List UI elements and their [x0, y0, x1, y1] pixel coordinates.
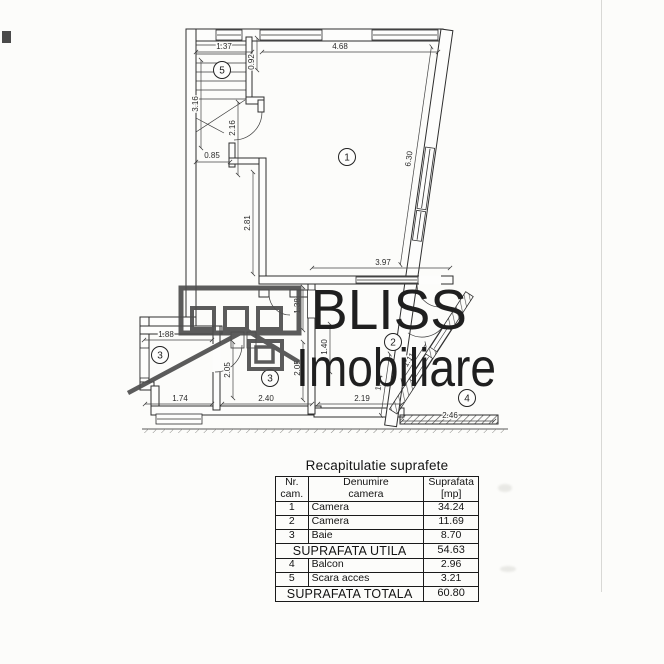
- svg-text:3: 3: [157, 351, 163, 362]
- subtotal-row: SUPRAFATA UTILA 54.63: [276, 543, 479, 558]
- dimension-label: 2.05: [223, 362, 232, 378]
- table-row: 3 Baie 8.70: [276, 529, 479, 543]
- header-area: Suprafata[mp]: [424, 477, 479, 502]
- dimension-label: 0.92: [247, 54, 256, 70]
- room-label-3b: 3: [262, 370, 279, 387]
- ground-hatch: [142, 429, 508, 433]
- logo-text-bliss: BLISS: [311, 278, 467, 342]
- room-label-5: 5: [214, 62, 231, 79]
- svg-text:1: 1: [344, 153, 350, 164]
- window: [412, 147, 434, 241]
- dimension-label: 1.74: [172, 394, 188, 403]
- svg-text:5: 5: [219, 66, 225, 77]
- table-row: 2 Camera 11.69: [276, 515, 479, 529]
- total-row: SUPRAFATA TOTALA 60.80: [276, 586, 479, 601]
- window: [140, 348, 149, 378]
- dimension-label: 1.88: [158, 330, 174, 339]
- staircase: [196, 45, 246, 133]
- table-header-row: Nr.cam. Denumirecamera Suprafata[mp]: [276, 477, 479, 502]
- room-label-3a: 3: [152, 347, 169, 364]
- dimension-label: 2.81: [243, 215, 252, 231]
- table-title: Recapitulatie suprafete: [275, 458, 479, 473]
- dimension-label: 2.46: [442, 411, 458, 420]
- header-name: Denumirecamera: [308, 477, 424, 502]
- dimension-label: 4.68: [332, 42, 348, 51]
- dimension-label: 2.16: [228, 120, 237, 136]
- logo-text-imobiliare: Imobiliare: [296, 338, 496, 398]
- dimension-label: 3.16: [191, 96, 200, 112]
- dimension-label: 0.85: [204, 151, 220, 160]
- bliss-logo: BLISS Imobiliare: [128, 278, 496, 398]
- svg-text:3: 3: [267, 374, 273, 385]
- area-table: Nr.cam. Denumirecamera Suprafata[mp] 1 C…: [275, 476, 479, 602]
- dimension-label: 1.37: [216, 42, 232, 51]
- table-row: 5 Scara acces 3.21: [276, 572, 479, 586]
- table-row: 1 Camera 34.24: [276, 501, 479, 515]
- table-row: 4 Balcon 2.96: [276, 558, 479, 572]
- hall-walls: [229, 143, 266, 282]
- dimension-label: 3.97: [375, 258, 391, 267]
- stair-enclosure-walls: [246, 37, 264, 112]
- area-recap-section: Recapitulatie suprafete Nr.cam. Denumire…: [275, 458, 479, 602]
- dimension-label: 6.30: [403, 150, 414, 167]
- header-nr: Nr.cam.: [276, 477, 309, 502]
- dimension-label: 2.40: [258, 394, 274, 403]
- room-label-1: 1: [339, 149, 356, 166]
- scanned-floorplan-page: 6.30 1.44: [0, 0, 664, 664]
